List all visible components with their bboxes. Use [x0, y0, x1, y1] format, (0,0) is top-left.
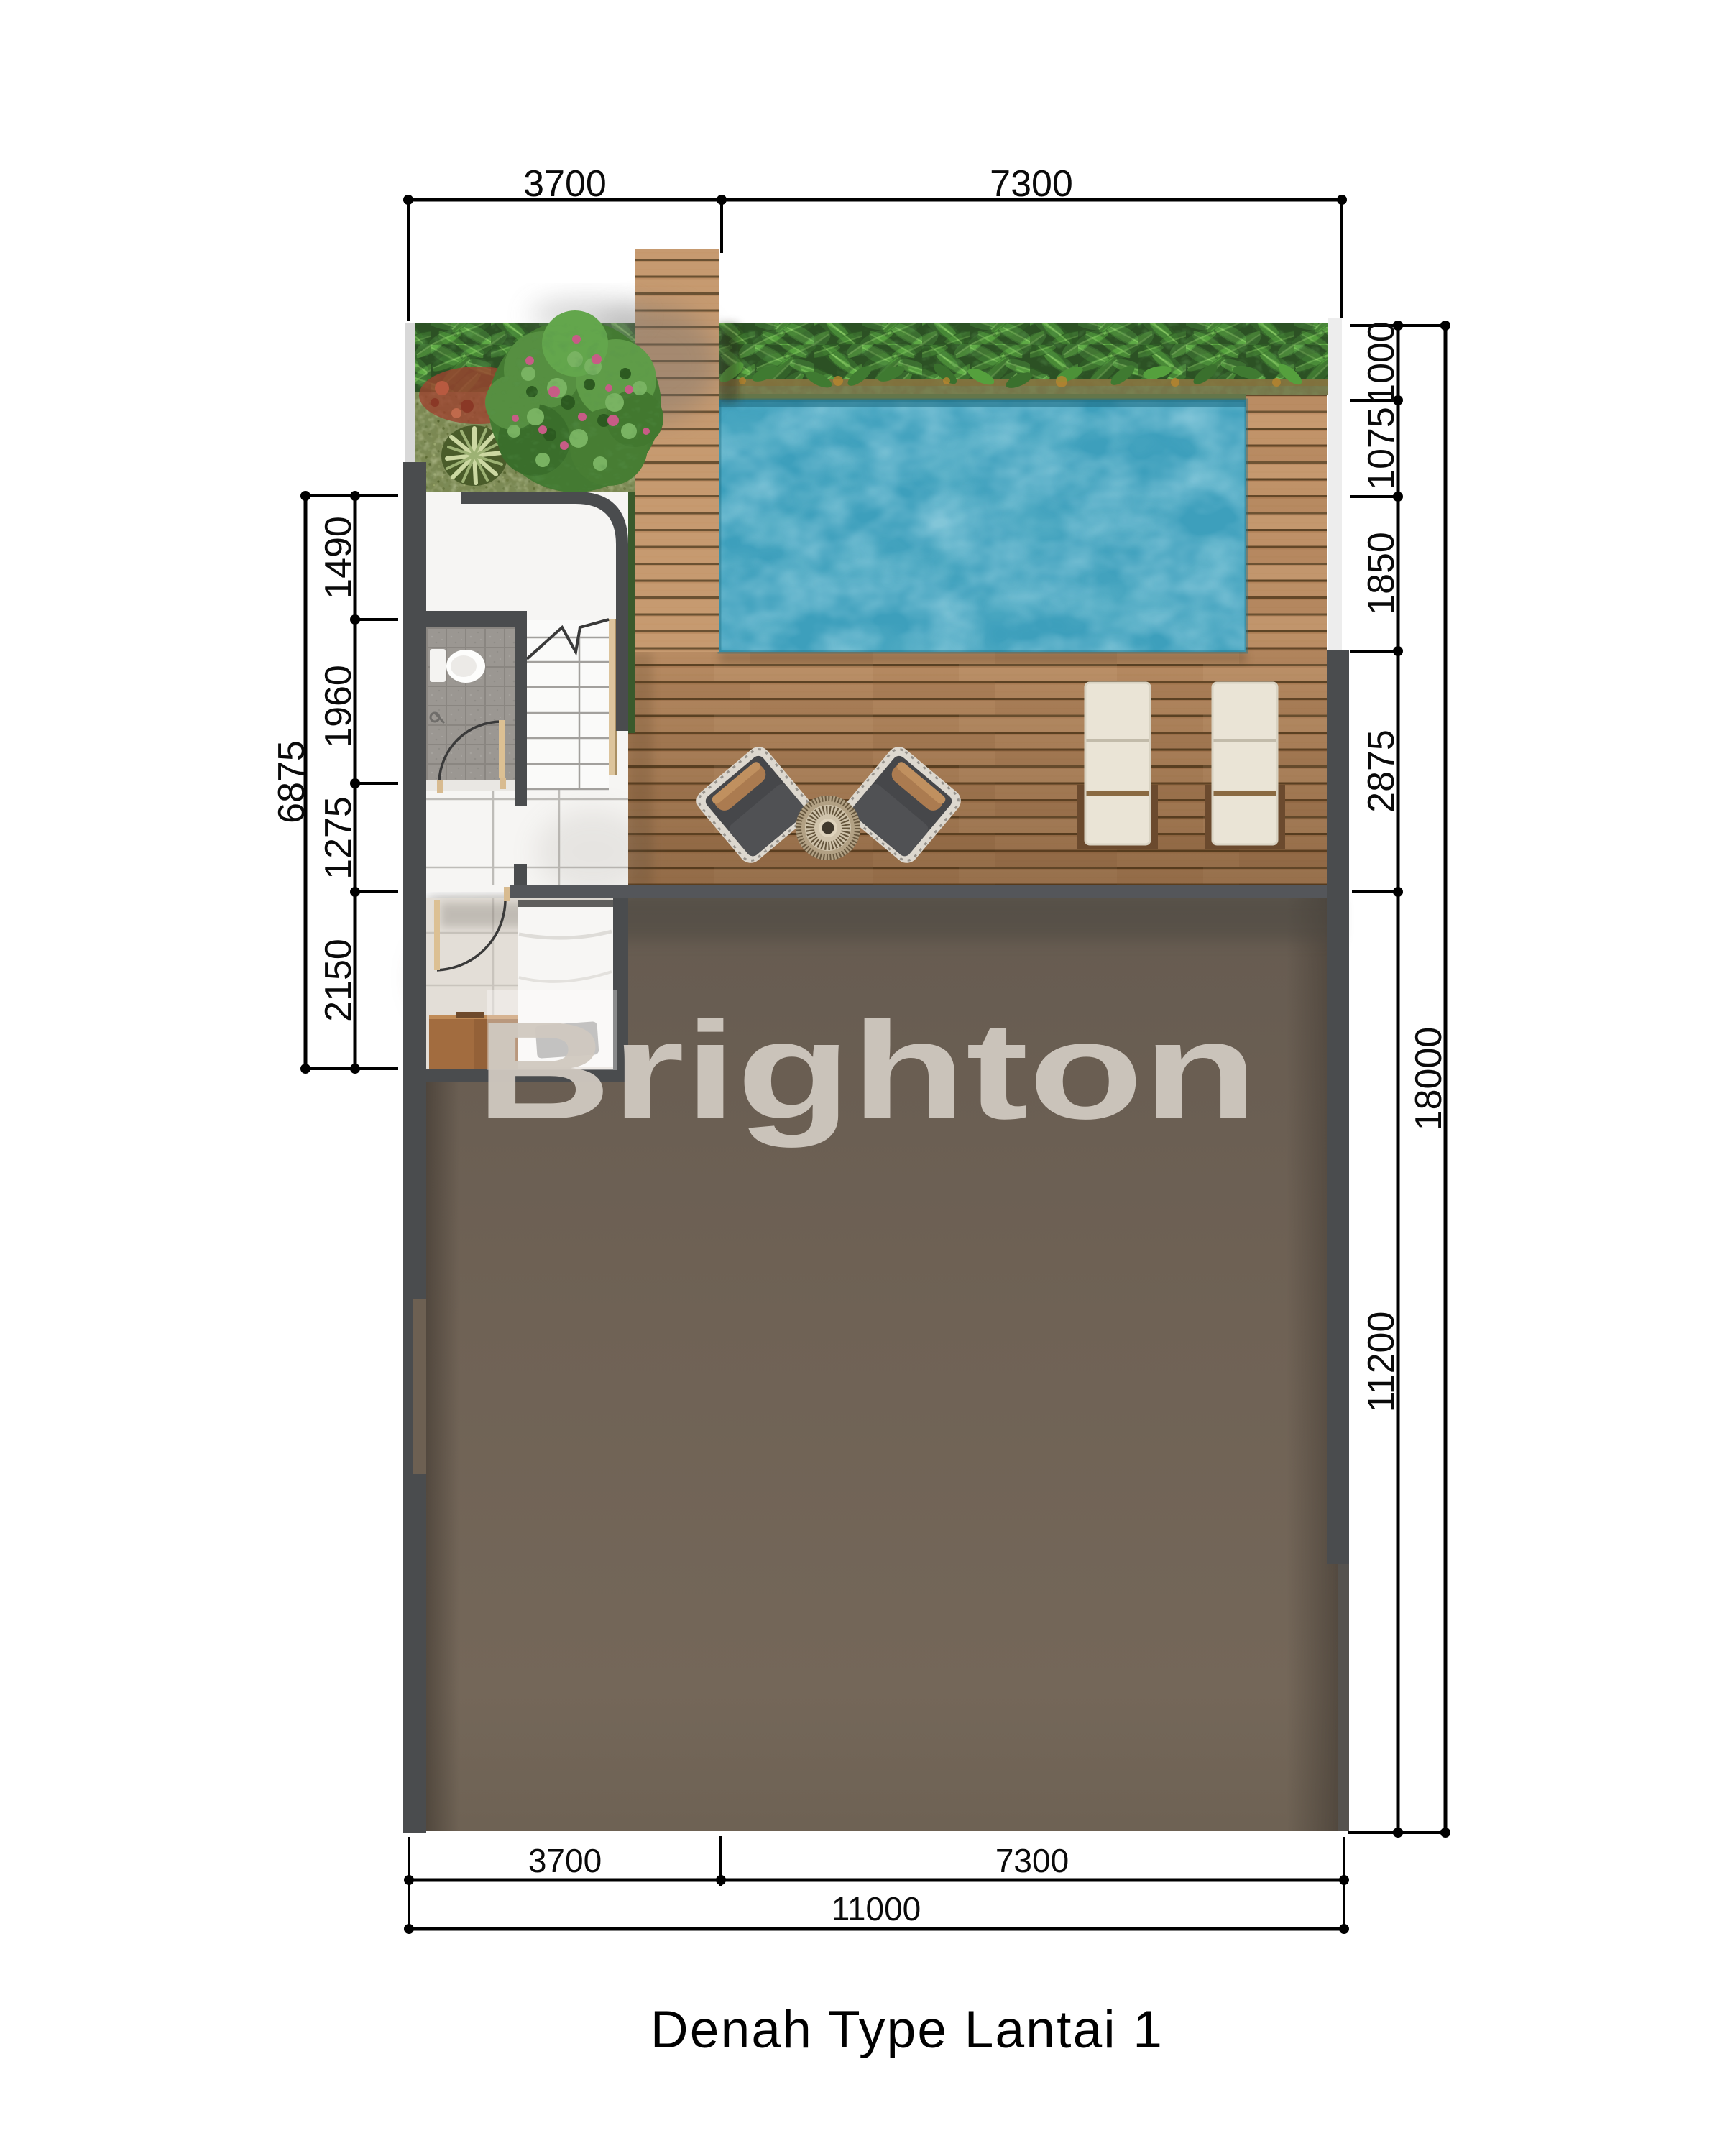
svg-text:11200: 11200 — [1361, 1312, 1402, 1413]
svg-text:Brighton: Brighton — [476, 992, 1258, 1148]
svg-text:Denah Type Lantai 1: Denah Type Lantai 1 — [650, 2001, 1164, 2059]
svg-text:3700: 3700 — [523, 163, 607, 205]
svg-text:1275: 1275 — [318, 796, 359, 880]
svg-text:6875: 6875 — [271, 740, 313, 824]
svg-text:1075: 1075 — [1361, 407, 1402, 490]
svg-text:1000: 1000 — [1361, 321, 1402, 405]
svg-text:11000: 11000 — [832, 1890, 921, 1927]
svg-text:7300: 7300 — [995, 1842, 1069, 1879]
svg-text:7300: 7300 — [990, 163, 1073, 205]
svg-text:1960: 1960 — [318, 665, 359, 748]
svg-text:2875: 2875 — [1361, 729, 1402, 813]
svg-text:18000: 18000 — [1408, 1027, 1450, 1131]
svg-text:3700: 3700 — [528, 1842, 602, 1879]
svg-text:1490: 1490 — [318, 516, 359, 599]
svg-text:1850: 1850 — [1361, 532, 1402, 615]
svg-text:2150: 2150 — [318, 939, 359, 1022]
